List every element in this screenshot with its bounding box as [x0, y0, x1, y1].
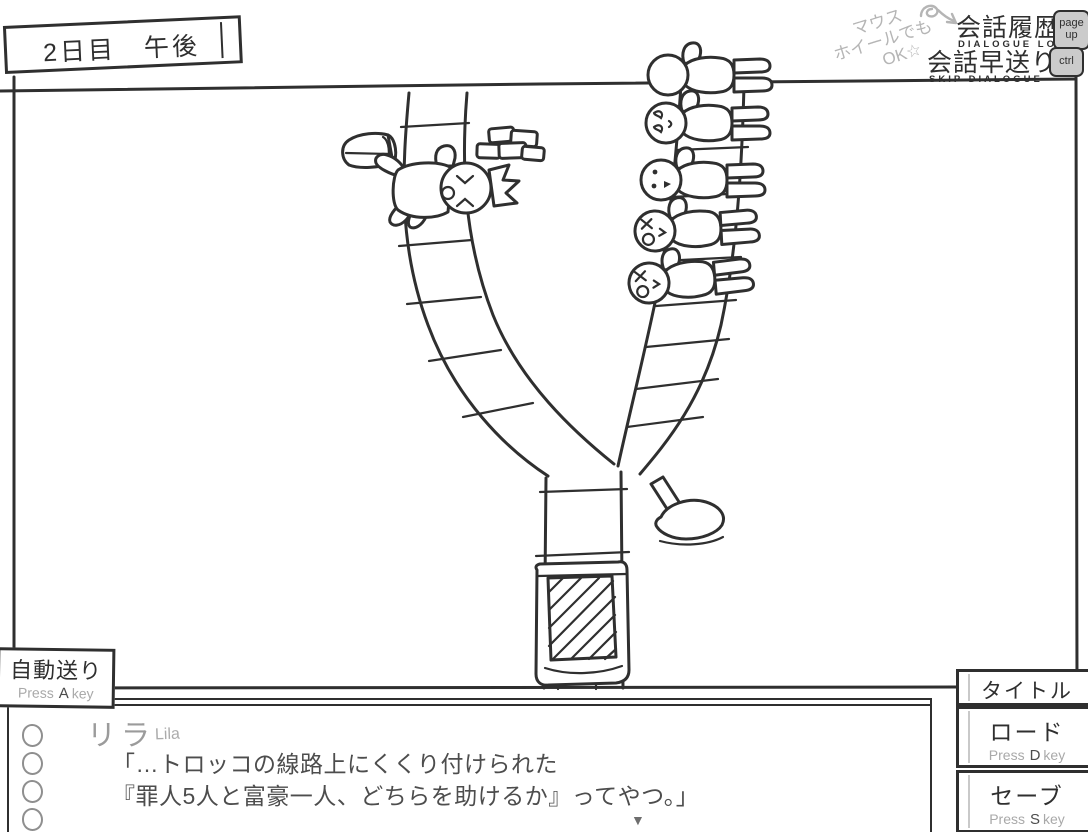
- game-screen: 2日目 午後 マウス ホイールでも OK☆ 会話履歴 DIALOGUE LOG …: [0, 0, 1088, 832]
- switch-lever-icon: [651, 477, 724, 544]
- press-key-letter: D: [1030, 747, 1041, 764]
- load-button-label: ロード: [959, 713, 1088, 747]
- press-word: Press: [989, 747, 1025, 763]
- title-button[interactable]: タイトル: [956, 669, 1088, 706]
- press-word: key: [72, 685, 94, 701]
- press-word: Press: [18, 684, 54, 700]
- save-button-hint: PressSkey: [959, 811, 1088, 828]
- press-word: key: [1043, 747, 1065, 763]
- save-button-label: セーブ: [959, 777, 1088, 811]
- gold-bars-icon: [477, 127, 545, 161]
- sinner-3: [641, 148, 765, 200]
- dialogue-text: 「…トロッコの線路上にくくり付けられた 『罪人5人と富豪一人、どちらを助けるか』…: [112, 748, 699, 812]
- history-dot: [22, 808, 43, 831]
- press-word: Press: [989, 811, 1025, 827]
- trolley-icon: [536, 562, 629, 689]
- speaker-name-en: Lila: [155, 726, 181, 745]
- sinner-2: [646, 91, 770, 143]
- dialogue-box[interactable]: リラ Lila 「…トロッコの線路上にくくり付けられた 『罪人5人と富豪一人、ど…: [7, 698, 932, 832]
- sinner-1: [648, 43, 772, 95]
- load-button-hint: PressDkey: [959, 747, 1088, 764]
- sinner-5: [626, 242, 754, 305]
- auto-advance-hint: PressAkey: [0, 684, 112, 703]
- banner-edge-line: [220, 22, 224, 58]
- auto-advance-label: 自動送り: [0, 652, 112, 686]
- history-dot: [22, 780, 43, 803]
- history-dot: [22, 724, 43, 747]
- ctrl-keycap: ctrl: [1049, 47, 1084, 77]
- keycap-text: ctrl: [1059, 56, 1074, 68]
- sinner-4: [633, 193, 760, 252]
- press-key-letter: A: [59, 685, 69, 702]
- dialogue-line: 「…トロッコの線路上にくくり付けられた: [112, 748, 699, 780]
- keycap-text: up: [1065, 30, 1077, 42]
- pageup-keycap: page up: [1053, 10, 1088, 50]
- history-dot: [22, 752, 43, 775]
- scene-banner-label: 2日目 午後: [42, 26, 200, 69]
- load-button[interactable]: ロード PressDkey: [956, 706, 1088, 768]
- skip-dialogue-sublabel: SKIP DIALOGUE: [929, 74, 1043, 85]
- press-word: key: [1043, 811, 1065, 827]
- title-button-label: タイトル: [959, 675, 1088, 705]
- press-key-letter: S: [1030, 811, 1040, 828]
- dialogue-line: 『罪人5人と富豪一人、どちらを助けるか』ってやつ。」: [112, 780, 699, 812]
- save-button[interactable]: セーブ PressSkey: [956, 770, 1088, 832]
- dialogue-box-inner-border: [9, 704, 930, 706]
- auto-advance-button[interactable]: 自動送り PressAkey: [0, 647, 115, 709]
- advance-indicator-icon: ▼: [631, 812, 645, 828]
